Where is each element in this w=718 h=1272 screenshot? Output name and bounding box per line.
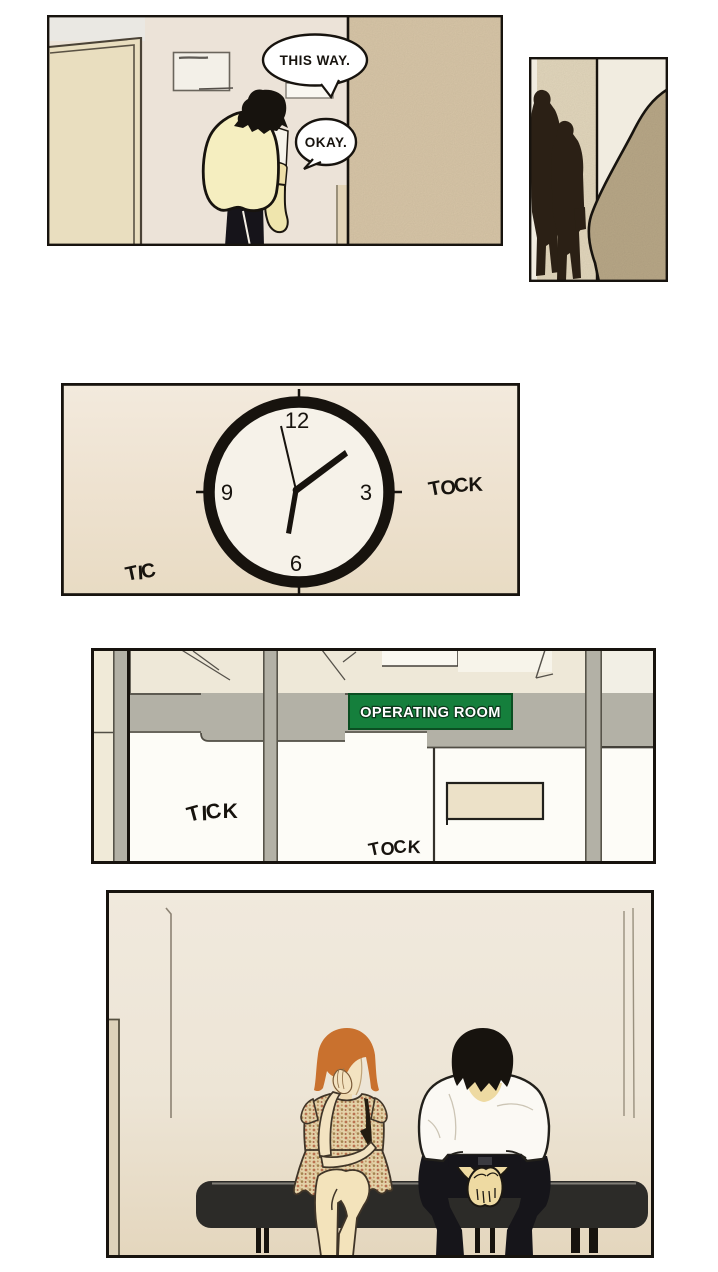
svg-text:9: 9 [221, 480, 233, 505]
svg-text:12: 12 [285, 408, 309, 433]
svg-text:6: 6 [290, 551, 302, 576]
svg-text:THIS WAY.: THIS WAY. [280, 53, 351, 68]
svg-text:3: 3 [360, 480, 372, 505]
svg-text:OKAY.: OKAY. [305, 135, 348, 150]
svg-text:OPERATING ROOM: OPERATING ROOM [360, 705, 501, 721]
